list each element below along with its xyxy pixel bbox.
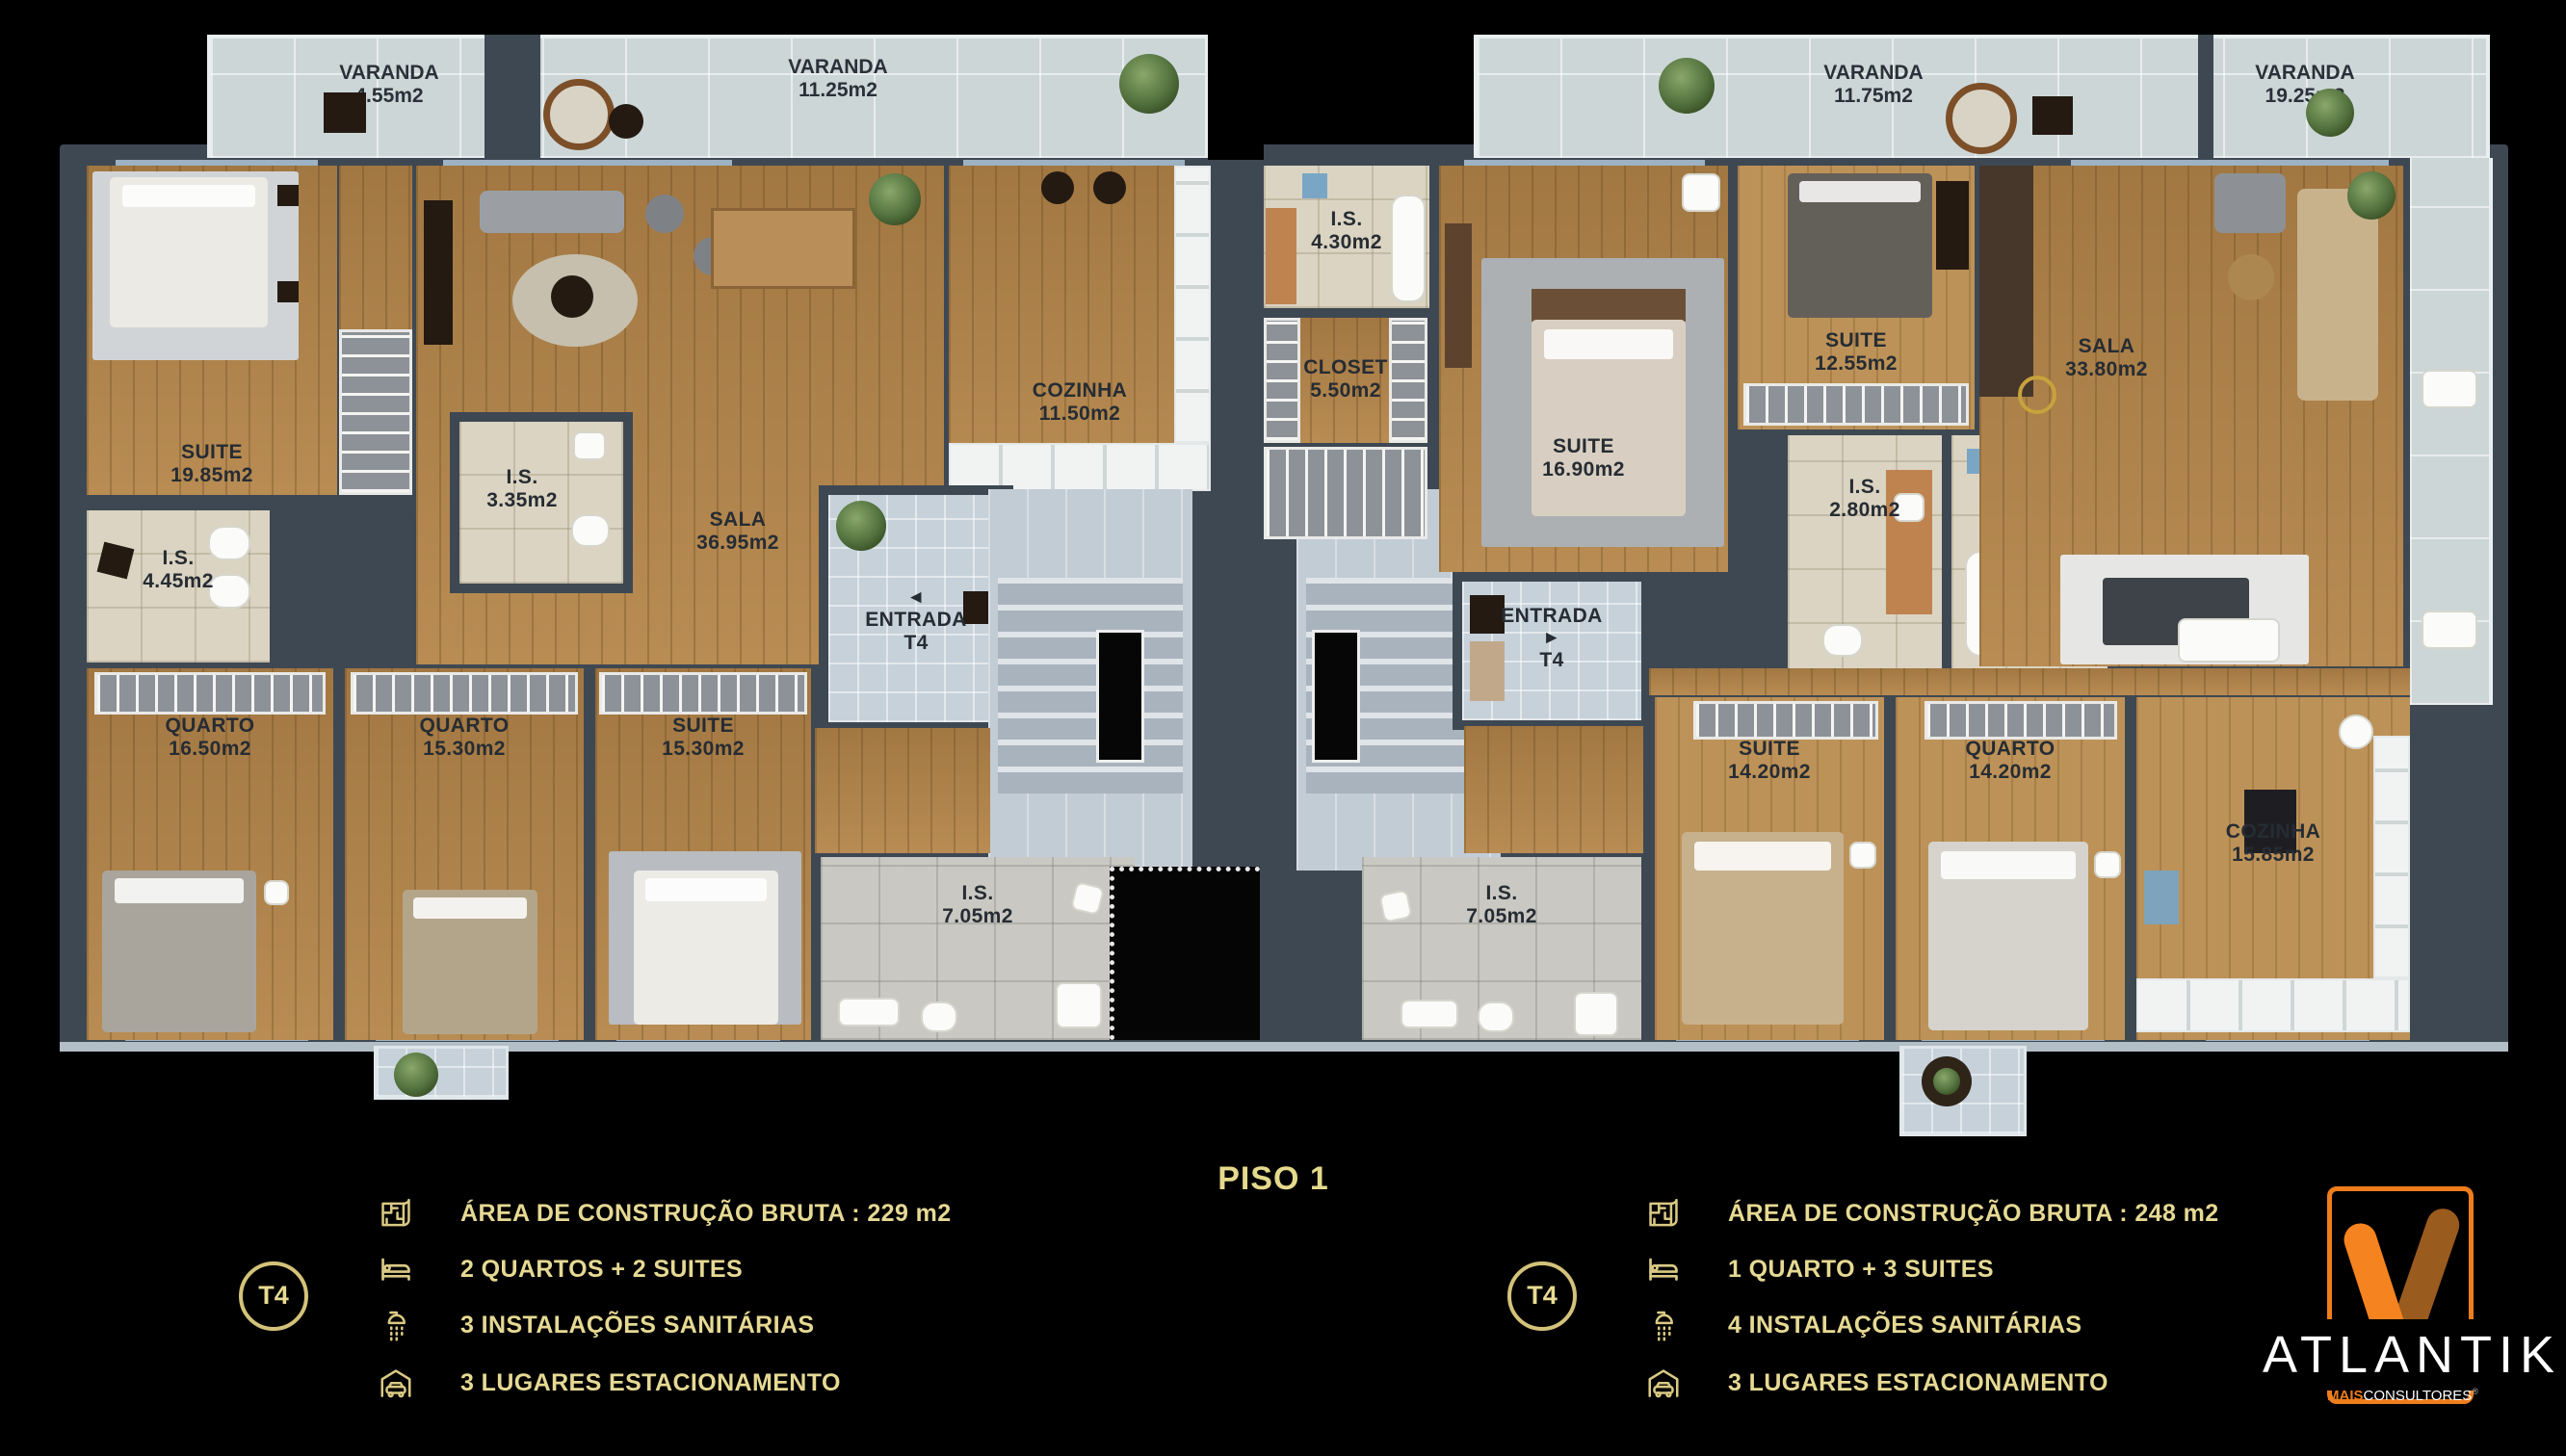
room-label: QUARTO15.30m2 [345,715,584,761]
room-is-7-05-left: I.S.7.05m2 [821,857,1135,1040]
armchair [1682,173,1720,212]
nightstand [2094,851,2121,878]
sink [573,431,606,460]
nightstand [277,281,299,302]
wardrobe [1743,383,1969,426]
bed [110,177,268,327]
garage-icon [1645,1365,1682,1402]
room-cozinha-15-85: COZINHA15.85m2 [2136,697,2410,1040]
room-label: I.S.7.05m2 [1362,882,1641,928]
deck-chair [2422,370,2477,408]
kitchen-counter [949,443,1211,491]
plant-icon [2306,89,2354,137]
brand-logo: ATLANTIK MAISCONSULTORES® [2258,1167,2566,1456]
wardrobe [1693,701,1878,740]
stairs [998,578,1183,793]
room-label: SUITE16.90m2 [1439,435,1728,481]
brand-tagline: MAISCONSULTORES® [2327,1387,2474,1404]
plant-icon [1119,54,1179,114]
plant-icon [1659,58,1715,114]
shower [1056,982,1102,1028]
room-is-4-45: I.S.4.45m2 [87,510,270,663]
bed [1788,173,1932,318]
sink [2339,715,2373,749]
room-is-4-30: I.S.4.30m2 [1264,166,1429,308]
headboard [1532,289,1686,322]
room-suite-14-20: SUITE14.20m2 [1655,697,1884,1040]
kitchen-counter [2136,978,2410,1032]
dining-table [711,208,855,289]
room-label: I.S.3.35m2 [459,466,585,512]
bed [403,890,537,1034]
armchair [645,195,684,233]
hall-right [1464,726,1643,853]
shower [1574,992,1618,1036]
desk [1936,181,1969,270]
hanging-chair [543,79,615,150]
entry-arrow-icon: ◄ [828,587,1004,609]
room-is-3-35: I.S.3.35m2 [450,412,633,593]
shower-mat [1302,173,1327,198]
side-table [609,104,643,139]
wardrobe [1264,447,1427,539]
nightstand [264,880,289,905]
room-closet-5-50: CLOSET5.50m2 [1264,318,1427,443]
legend-left: T4 ÁREA DE CONSTRUÇÃO BRUTA : 229 m2 2 Q… [222,1186,1243,1437]
floor-plan-page: VARANDA4.55m2 VARANDA11.25m2 VARANDA11.7… [0,0,2566,1456]
toilet [1478,1001,1514,1032]
room-label: I.S.4.30m2 [1264,208,1429,254]
bed-icon [378,1252,414,1288]
wardrobe [339,329,412,495]
entry-arrow-icon: ► [1462,628,1641,649]
room-label: ENTRADA► T4 [1462,605,1641,672]
kitchen-island [2178,618,2280,663]
wardrobe [599,672,807,715]
room-suite-15-30: SUITE15.30m2 [595,668,811,1040]
hanging-chair [1946,83,2017,154]
wardrobe [1924,701,2117,740]
room-label: I.S.2.80m2 [1788,476,1942,522]
bed [102,871,256,1032]
nightstand [277,185,299,206]
plant-icon [1933,1068,1960,1095]
room-is-7-05-right: I.S.7.05m2 [1362,857,1641,1040]
room-label: QUARTO16.50m2 [87,715,333,761]
room-quarto-15-30: QUARTO15.30m2 [345,668,584,1040]
plant-icon [869,173,921,225]
room-label: I.S.7.05m2 [821,882,1135,928]
kitchen-towel [2144,871,2179,924]
roof-gap [1208,29,1264,160]
room-label: I.S.4.45m2 [87,547,270,593]
varanda-label: VARANDA11.25m2 [694,56,982,102]
sofa [480,191,624,233]
room-label: COZINHA11.50m2 [949,379,1211,426]
shower-icon [1645,1308,1682,1344]
dressing-corridor [339,166,412,495]
varanda-strip-right: VARANDA11.75m2 VARANDA19.25m2 [1474,35,2490,158]
room-quarto-16-50: QUARTO16.50m2 [87,668,333,1040]
lightwell-void [1110,867,1260,1040]
room-quarto-14-20: QUARTO14.20m2 [1896,697,2125,1040]
stair-core-left [988,489,1192,871]
small-balcony [374,1046,509,1100]
unit-type-badge: T4 [239,1261,308,1331]
brand-name: ATLANTIK [2258,1319,2566,1391]
toilet [571,514,610,547]
toilet [1822,624,1863,657]
room-cozinha-11-50: COZINHA11.50m2 [949,166,1211,491]
bed-icon [1645,1252,1682,1288]
sink [838,998,900,1027]
varanda-wrap-right [2410,158,2493,705]
hall-left [815,728,990,853]
room-label: SALA33.80m2 [1979,335,2234,381]
plant-icon [836,501,886,551]
room-suite-19-85: SUITE19.85m2 [87,166,337,495]
room-label: SUITE19.85m2 [87,441,337,487]
bed [1928,842,2088,1030]
wardrobe [351,672,578,715]
bed [1682,832,1844,1025]
terrace-table [2032,96,2073,135]
sofa [2297,189,2378,401]
bar-stool [1041,171,1074,204]
bed [1532,320,1686,516]
wardrobe [94,672,326,715]
room-sala-33-80: SALA33.80m2 [1979,166,2403,666]
small-balcony [1899,1046,2027,1136]
floorplan-icon [1645,1196,1682,1233]
room-label: SUITE14.20m2 [1655,738,1884,784]
room-label: COZINHA15.85m2 [2136,820,2410,867]
room-label: SUITE12.55m2 [1738,329,1975,376]
garage-icon [378,1365,414,1402]
room-label: SUITE15.30m2 [595,715,811,761]
terrace-table [324,92,366,133]
room-entrada-right: ENTRADA► T4 [1453,572,1651,730]
room-suite-12-55: SUITE12.55m2 [1738,166,1975,429]
coffee-table [551,275,593,318]
deck-chair [2422,611,2477,649]
bar-stool [1093,171,1126,204]
room-label: CLOSET5.50m2 [1264,356,1427,403]
room-is-2-80: I.S.2.80m2 [1788,435,1942,678]
sink [1401,1000,1458,1028]
chaise [2214,173,2286,233]
floorplan-icon [378,1196,414,1233]
toilet [921,1001,957,1032]
tv-sideboard [1445,223,1472,368]
tv-sideboard [424,200,453,345]
unit-type-badge: T4 [1507,1261,1577,1331]
shower-icon [378,1308,414,1344]
room-label: ◄ ENTRADA T4 [828,587,1004,655]
varanda-divider-wall [484,35,540,158]
plant-icon [2347,171,2396,220]
varanda-divider-wall [2198,35,2213,158]
corridor-right [1649,668,2410,695]
bed [634,871,778,1025]
room-label: QUARTO14.20m2 [1896,738,2125,784]
plant-icon [394,1053,438,1097]
room-suite-16-90: SUITE16.90m2 [1439,166,1728,572]
nightstand [1849,842,1876,869]
stair-void [1312,630,1360,763]
varanda-strip-left: VARANDA4.55m2 VARANDA11.25m2 [207,35,1209,158]
stair-void [1096,630,1144,763]
coffee-table [2228,254,2274,300]
room-entrada-left: ◄ ENTRADA T4 [819,485,1013,732]
